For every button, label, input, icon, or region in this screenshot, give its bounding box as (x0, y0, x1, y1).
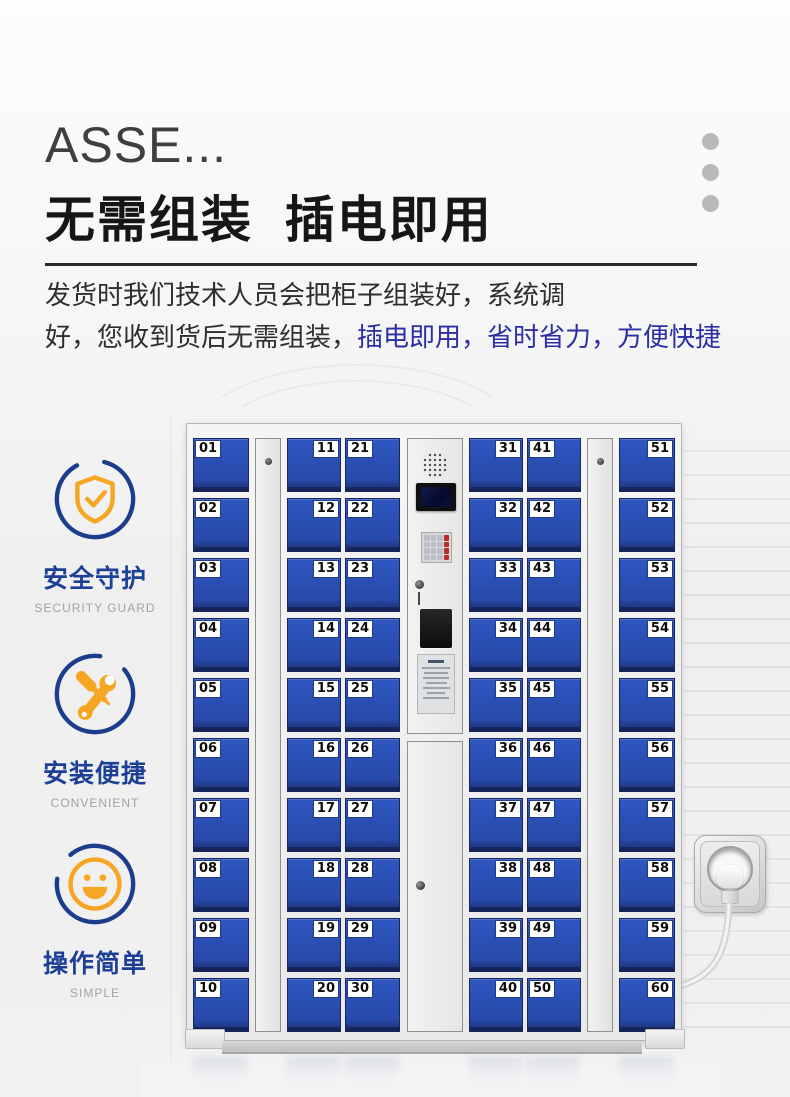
feature-subtitle: CONVENIENT (33, 796, 157, 810)
locker-door-34: 34 (469, 618, 523, 672)
locker-door-45: 45 (527, 678, 581, 732)
locker-door-02: 02 (193, 498, 249, 552)
door-number-label: 59 (648, 921, 672, 937)
door-number-label: 44 (530, 621, 554, 637)
door-number-label: 39 (496, 921, 520, 937)
locker-door-25: 25 (345, 678, 400, 732)
locker-door-11: 11 (287, 438, 341, 492)
locker-door-48: 48 (527, 858, 581, 912)
locker-door-38: 38 (469, 858, 523, 912)
intro-line1: 发货时我们技术人员会把柜子组装好，系统调 (45, 280, 565, 310)
door-number-label: 51 (648, 441, 672, 457)
locker-door-06: 06 (193, 738, 249, 792)
door-number-label: 56 (648, 741, 672, 757)
door-number-label: 12 (314, 501, 338, 517)
lock-icon (415, 580, 424, 589)
keypad (421, 532, 452, 563)
locker-door-13: 13 (287, 558, 341, 612)
feature-install: 安装便捷 CONVENIENT (33, 650, 157, 810)
lock-icon (597, 458, 604, 465)
door-number-label: 26 (348, 741, 372, 757)
locker-door-08: 08 (193, 858, 249, 912)
locker-door-51: 51 (619, 438, 675, 492)
locker-door-10: 10 (193, 978, 249, 1032)
locker-door-49: 49 (527, 918, 581, 972)
door-number-label: 46 (530, 741, 554, 757)
door-number-label: 42 (530, 501, 554, 517)
decorative-dots (702, 133, 719, 226)
door-number-label: 24 (348, 621, 372, 637)
locker-door-22: 22 (345, 498, 400, 552)
locker-door-41: 41 (527, 438, 581, 492)
drop-slot (420, 609, 452, 648)
door-number-label: 27 (348, 801, 372, 817)
instruction-label (417, 654, 455, 714)
wall-edge (170, 415, 172, 1065)
door-number-label: 34 (496, 621, 520, 637)
wrench-screwdriver-icon (51, 650, 139, 738)
side-panel-right (587, 438, 613, 1032)
locker-door-30: 30 (345, 978, 400, 1032)
locker-door-04: 04 (193, 618, 249, 672)
locker-door-54: 54 (619, 618, 675, 672)
locker-door-35: 35 (469, 678, 523, 732)
locker-door-58: 58 (619, 858, 675, 912)
door-number-label: 53 (648, 561, 672, 577)
socket-recess (707, 846, 753, 892)
locker-door-55: 55 (619, 678, 675, 732)
door-number-label: 31 (496, 441, 520, 457)
feature-title: 安全守护 (33, 559, 157, 595)
door-number-label: 52 (648, 501, 672, 517)
locker-door-07: 07 (193, 798, 249, 852)
shield-check-icon (51, 455, 139, 543)
locker-door-26: 26 (345, 738, 400, 792)
locker-door-33: 33 (469, 558, 523, 612)
center-lower-door (407, 741, 463, 1032)
lock-icon (265, 458, 272, 465)
locker-door-47: 47 (527, 798, 581, 852)
feature-subtitle: SIMPLE (33, 986, 157, 1000)
cabinet-foot (645, 1029, 685, 1049)
door-number-label: 41 (530, 441, 554, 457)
door-number-label: 40 (496, 981, 520, 997)
lock-icon (416, 881, 425, 890)
feature-simple: 操作简单 SIMPLE (33, 840, 157, 1000)
door-number-label: 60 (648, 981, 672, 997)
locker-door-46: 46 (527, 738, 581, 792)
door-number-label: 38 (496, 861, 520, 877)
side-panel-left (255, 438, 281, 1032)
feature-title: 安装便捷 (33, 754, 157, 790)
door-number-label: 19 (314, 921, 338, 937)
feature-security: 安全守护 SECURITY GUARD (33, 455, 157, 615)
door-number-label: 36 (496, 741, 520, 757)
locker-door-03: 03 (193, 558, 249, 612)
keyhole (418, 592, 420, 605)
locker-door-44: 44 (527, 618, 581, 672)
door-number-label: 49 (530, 921, 554, 937)
locker-door-16: 16 (287, 738, 341, 792)
locker-door-53: 53 (619, 558, 675, 612)
locker-door-43: 43 (527, 558, 581, 612)
locker-door-21: 21 (345, 438, 400, 492)
door-number-label: 47 (530, 801, 554, 817)
door-number-label: 55 (648, 681, 672, 697)
locker-door-36: 36 (469, 738, 523, 792)
door-number-label: 29 (348, 921, 372, 937)
locker-door-57: 57 (619, 798, 675, 852)
door-number-label: 23 (348, 561, 372, 577)
locker-door-20: 20 (287, 978, 341, 1032)
locker-door-39: 39 (469, 918, 523, 972)
locker-door-05: 05 (193, 678, 249, 732)
locker-door-12: 12 (287, 498, 341, 552)
door-number-label: 09 (196, 921, 220, 937)
cabinet-foot (185, 1029, 225, 1049)
door-number-label: 02 (196, 501, 220, 517)
locker-door-42: 42 (527, 498, 581, 552)
door-number-label: 28 (348, 861, 372, 877)
door-number-label: 48 (530, 861, 554, 877)
door-number-label: 21 (348, 441, 372, 457)
door-number-label: 50 (530, 981, 554, 997)
locker-door-32: 32 (469, 498, 523, 552)
screen-glass (421, 487, 451, 507)
door-number-label: 33 (496, 561, 520, 577)
locker-door-17: 17 (287, 798, 341, 852)
locker-door-27: 27 (345, 798, 400, 852)
locker-door-09: 09 (193, 918, 249, 972)
locker-door-37: 37 (469, 798, 523, 852)
power-plug (717, 865, 743, 888)
intro-highlight: 插电即用，省时省力，方便快捷 (357, 322, 721, 352)
door-number-label: 04 (196, 621, 220, 637)
door-number-label: 30 (348, 981, 372, 997)
locker-door-29: 29 (345, 918, 400, 972)
door-number-label: 16 (314, 741, 338, 757)
door-number-label: 25 (348, 681, 372, 697)
intro-text: 发货时我们技术人员会把柜子组装好，系统调 好，您收到货后无需组装，插电即用，省时… (45, 274, 721, 358)
locker-door-19: 19 (287, 918, 341, 972)
door-number-label: 35 (496, 681, 520, 697)
door-number-label: 03 (196, 561, 220, 577)
door-number-label: 13 (314, 561, 338, 577)
door-number-label: 22 (348, 501, 372, 517)
locker-cabinet: 0102030405060708091011121314151617181920… (186, 423, 682, 1041)
product-banner: ASSE... 无需组装 插电即用 发货时我们技术人员会把柜子组装好，系统调 好… (0, 0, 790, 1097)
display-screen (416, 483, 456, 511)
reflection-fade (140, 1048, 720, 1097)
door-number-label: 01 (196, 441, 220, 457)
door-number-label: 06 (196, 741, 220, 757)
title-en: ASSE... (45, 116, 227, 174)
locker-door-56: 56 (619, 738, 675, 792)
locker-door-40: 40 (469, 978, 523, 1032)
feature-title: 操作简单 (33, 944, 157, 980)
feature-subtitle: SECURITY GUARD (33, 601, 157, 615)
door-number-label: 17 (314, 801, 338, 817)
plug-neck (722, 890, 739, 904)
door-number-label: 05 (196, 681, 220, 697)
door-number-label: 14 (314, 621, 338, 637)
door-number-label: 45 (530, 681, 554, 697)
locker-door-15: 15 (287, 678, 341, 732)
door-number-label: 08 (196, 861, 220, 877)
door-number-label: 07 (196, 801, 220, 817)
locker-door-60: 60 (619, 978, 675, 1032)
locker-door-59: 59 (619, 918, 675, 972)
locker-door-18: 18 (287, 858, 341, 912)
power-socket (694, 835, 766, 913)
divider-line (45, 263, 697, 266)
locker-door-01: 01 (193, 438, 249, 492)
door-number-label: 58 (648, 861, 672, 877)
door-number-label: 18 (314, 861, 338, 877)
door-number-label: 43 (530, 561, 554, 577)
door-number-label: 15 (314, 681, 338, 697)
page-title: 无需组装 插电即用 (45, 180, 493, 252)
locker-door-23: 23 (345, 558, 400, 612)
locker-door-52: 52 (619, 498, 675, 552)
control-panel (407, 438, 463, 734)
speaker-grille-icon (422, 452, 448, 478)
door-number-label: 54 (648, 621, 672, 637)
locker-door-28: 28 (345, 858, 400, 912)
intro-line2: 好，您收到货后无需组装， (45, 322, 357, 352)
door-number-label: 10 (196, 981, 220, 997)
door-number-label: 37 (496, 801, 520, 817)
smile-icon (51, 840, 139, 928)
door-number-label: 57 (648, 801, 672, 817)
locker-door-50: 50 (527, 978, 581, 1032)
locker-door-24: 24 (345, 618, 400, 672)
socket-plate (700, 841, 760, 907)
locker-door-14: 14 (287, 618, 341, 672)
door-number-label: 20 (314, 981, 338, 997)
door-number-label: 11 (314, 441, 338, 457)
locker-door-31: 31 (469, 438, 523, 492)
door-number-label: 32 (496, 501, 520, 517)
